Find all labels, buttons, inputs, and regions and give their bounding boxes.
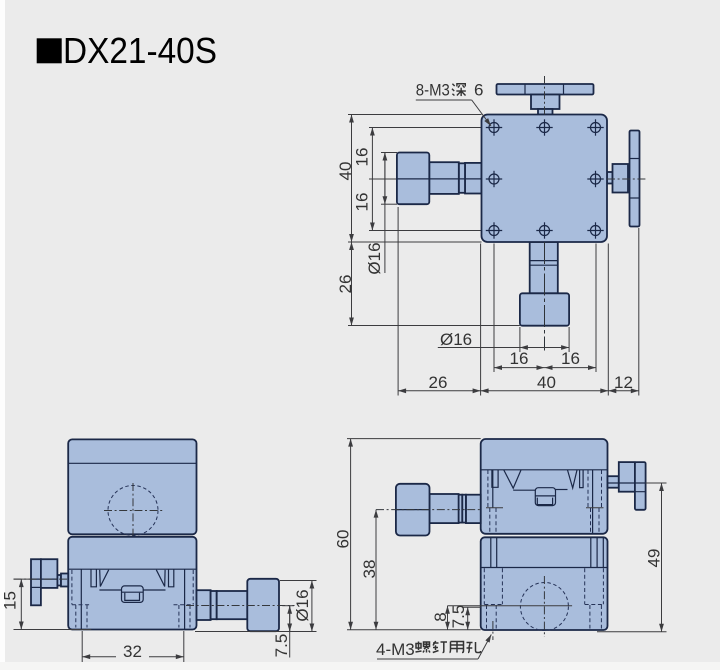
- svg-text:7.5: 7.5: [449, 605, 468, 629]
- svg-text:7.5: 7.5: [272, 634, 291, 658]
- svg-text:DX21-40S: DX21-40S: [63, 30, 217, 71]
- svg-text:26: 26: [429, 373, 448, 392]
- svg-text:32: 32: [123, 642, 142, 661]
- svg-text:4-M3: 4-M3: [376, 640, 415, 659]
- svg-text:8-M3: 8-M3: [416, 81, 450, 100]
- svg-text:40: 40: [537, 373, 556, 392]
- svg-text:Ø16: Ø16: [293, 589, 312, 621]
- svg-text:16: 16: [510, 349, 529, 368]
- svg-text:38: 38: [360, 560, 379, 579]
- svg-text:49: 49: [645, 549, 664, 568]
- svg-text:Ø16: Ø16: [440, 330, 472, 349]
- svg-text:12: 12: [614, 373, 633, 392]
- svg-text:8: 8: [431, 612, 450, 621]
- svg-text:16: 16: [353, 193, 372, 212]
- svg-text:60: 60: [334, 530, 353, 549]
- svg-text:26: 26: [336, 275, 355, 294]
- svg-text:16: 16: [353, 148, 372, 167]
- svg-text:15: 15: [1, 591, 20, 610]
- svg-text:6: 6: [474, 81, 483, 100]
- svg-text:16: 16: [561, 349, 580, 368]
- svg-text:Ø16: Ø16: [365, 242, 384, 274]
